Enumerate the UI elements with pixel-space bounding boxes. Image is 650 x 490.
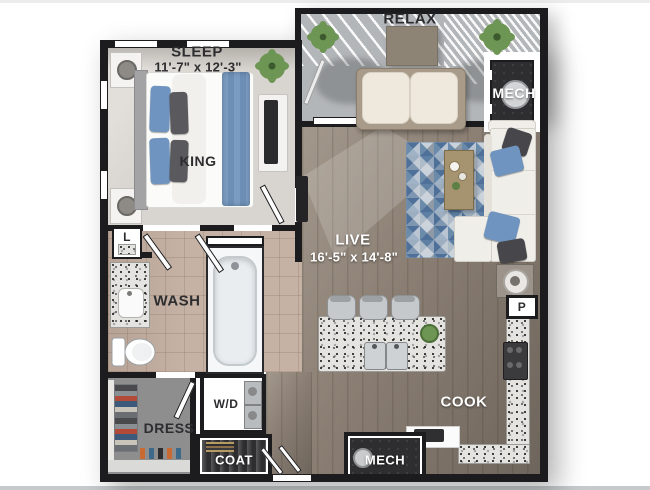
bed-pillow-blue-1	[149, 86, 171, 133]
counter-bottom	[458, 444, 530, 464]
top-border-band	[0, 0, 650, 3]
wall-bedroom-bottom-2	[200, 225, 234, 231]
fixture-label-king-bed: KING	[180, 153, 217, 169]
entry-threshold	[272, 474, 312, 482]
coffee-table-plate-2	[458, 172, 467, 181]
coffee-table-plant-sprig	[452, 182, 460, 190]
room-label-coat: COAT	[215, 453, 253, 468]
label-washer-dryer: W/D	[214, 397, 239, 411]
coat-hanging-items	[206, 442, 234, 452]
room-label-wash: WASH	[154, 293, 201, 310]
stove-burner-3	[507, 362, 513, 368]
floor-plan: SLEEP 11'-7" x 12'-3" KING RELAX MECH LI…	[0, 0, 650, 490]
bar-stool-1-back	[330, 296, 351, 302]
tub-head-wall	[206, 236, 264, 246]
bar-stool-3-back	[394, 296, 415, 302]
bar-stool-2-back	[362, 296, 383, 302]
toilet-icon	[110, 334, 158, 370]
bed-pillow-gray-1	[169, 92, 188, 135]
bottom-border-band	[0, 486, 650, 490]
island-faucet-icon-2	[394, 344, 399, 349]
sliding-door-panel-1	[313, 117, 359, 125]
balcony-plant-right-icon	[478, 18, 516, 56]
stove-burner-2	[516, 347, 522, 353]
dress-shelf-bottom	[108, 460, 190, 472]
room-dims-sleep: 11'-7" x 12'-3"	[154, 60, 241, 75]
tv-icon-living	[296, 176, 308, 222]
room-label-mech-lower: MECH	[365, 453, 405, 468]
washer-door-icon	[248, 387, 257, 396]
loveseat-cushion-left	[362, 72, 410, 124]
stove-burner-4	[516, 362, 522, 368]
tv-icon-bedroom	[264, 100, 278, 164]
room-label-mech-upper: MECH	[492, 85, 535, 101]
tub-faucet-icon	[231, 262, 239, 270]
balcony-plant-left-icon	[306, 20, 340, 54]
window-bedroom-top-1	[114, 40, 158, 48]
window-bedroom-left-2	[100, 170, 108, 200]
window-bedroom-left-1	[100, 80, 108, 110]
coffee-table-plate-1	[449, 161, 460, 172]
stove-burner-1	[507, 347, 513, 353]
mech-upper-door-notch-2	[486, 104, 492, 114]
room-label-relax: RELAX	[383, 11, 436, 28]
bed-pillow-blue-2	[149, 138, 171, 185]
mech-upper-door-notch-1	[486, 70, 492, 80]
balcony-table	[386, 26, 438, 66]
room-label-live: LIVE	[335, 232, 370, 249]
side-table-lamp-center	[510, 276, 520, 286]
loveseat-cushion-right	[410, 72, 458, 124]
dress-clothes-rack	[114, 384, 138, 452]
label-pantry: P	[518, 300, 527, 314]
wall-right	[540, 8, 548, 482]
counter-right	[506, 318, 530, 464]
bed-blue-throw	[222, 72, 250, 206]
room-dims-live: 16'-5" x 14'-8"	[310, 250, 398, 265]
wall-balcony-left	[295, 8, 301, 48]
island-plant-icon	[420, 324, 439, 343]
room-label-dress: DRESS	[144, 420, 195, 436]
wall-hall-living-stub	[295, 231, 302, 262]
wall-bath-bottom-1	[100, 372, 156, 378]
dress-shoes-row	[140, 448, 184, 459]
island-faucet-icon	[372, 344, 377, 349]
room-label-sleep: SLEEP	[171, 44, 223, 61]
linen-shelf	[118, 244, 136, 255]
room-label-cook: COOK	[441, 394, 488, 411]
vanity-faucet-icon	[127, 291, 132, 296]
dryer-door-icon	[248, 411, 257, 420]
bedroom-plant-icon	[254, 48, 290, 84]
wall-bedroom-right-upper	[295, 48, 302, 188]
label-linen-closet: L	[123, 230, 131, 244]
